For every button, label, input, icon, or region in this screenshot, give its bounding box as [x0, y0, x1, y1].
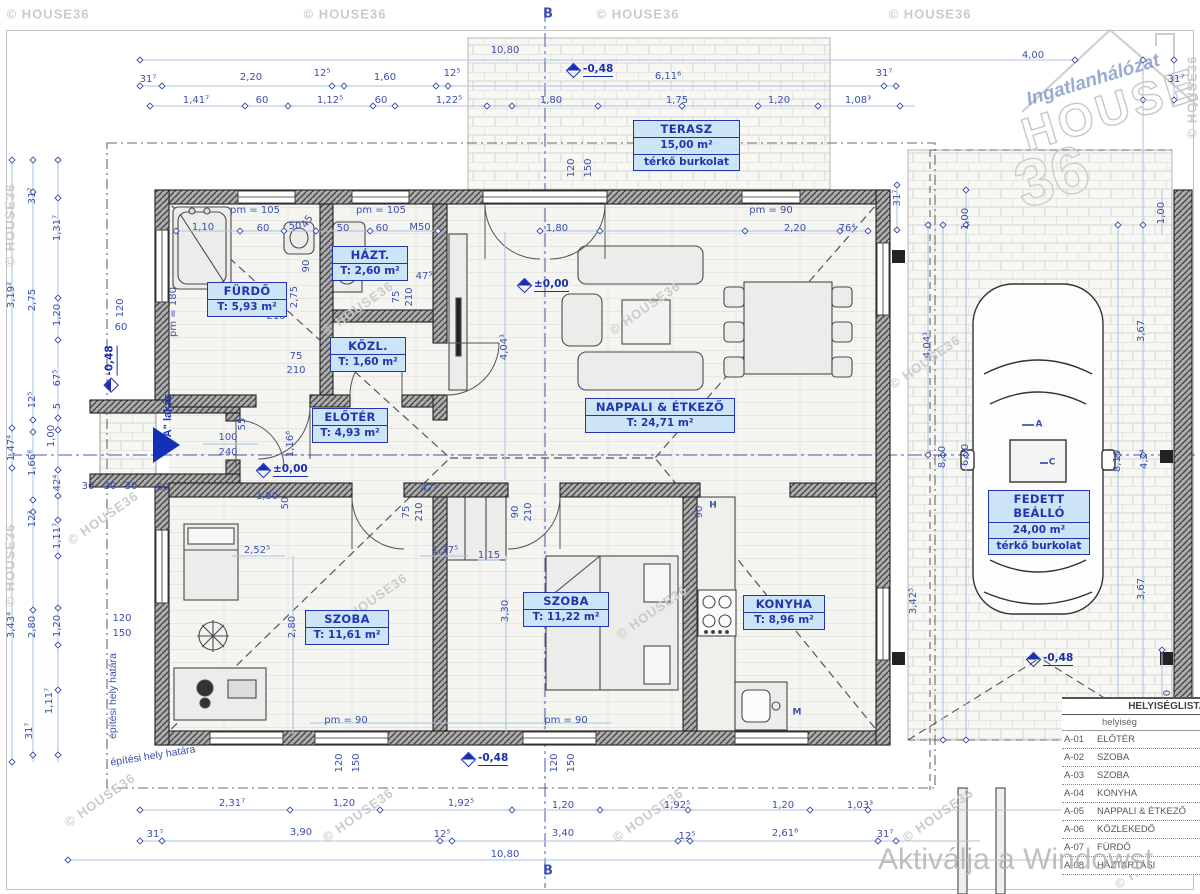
kitchen-sink — [735, 682, 787, 730]
level-marker: -0,48 — [1028, 652, 1073, 666]
dimension-label: 210 — [415, 502, 425, 521]
dimension-label: 12⁵ — [434, 830, 451, 840]
copyright-watermark: © HOUSE36 — [1185, 56, 1200, 139]
dimension-label: 150 — [567, 753, 577, 772]
dimension-label: 31⁷ — [28, 188, 38, 205]
room-label-line: NAPPALI & ÉTKEZŐ — [586, 399, 734, 415]
dimension-label: 1,41⁷ — [183, 96, 209, 106]
dimension-label: 1,22⁵ — [436, 96, 462, 106]
dimension-label: 1,92⁵ — [664, 801, 690, 811]
room-label-kozlekedo: KÖZL.T: 1,60 m² — [330, 337, 406, 372]
room-label-line: T: 4,93 m² — [313, 425, 387, 441]
dimension-label: 50 — [337, 224, 350, 234]
dimension-label: 1,60 — [374, 73, 396, 83]
dimension-label: 30 — [125, 482, 138, 492]
dimension-label: 1,20 — [772, 801, 794, 811]
dimension-label: 12⁵ — [28, 392, 38, 409]
dimension-label: pm = 105 — [356, 206, 406, 216]
dimension-label: 240 — [218, 448, 237, 458]
room-label-line: HÁZT. — [333, 247, 407, 263]
level-value: -0,48 — [583, 63, 613, 77]
dimension-label: 1,20 — [53, 304, 63, 326]
dimension-label: 60 — [375, 96, 388, 106]
room-code: A-06 — [1064, 824, 1088, 835]
dimension-label: 2,31⁷ — [219, 799, 245, 809]
dimension-label: 1,80 — [546, 224, 568, 234]
room-label-line: KÖZL. — [331, 338, 405, 354]
dimension-label: 31⁷ — [893, 190, 903, 207]
dimension-label: 75 — [290, 352, 303, 362]
dimension-label: 31⁷ — [1168, 75, 1185, 85]
level-flag-icon — [103, 377, 119, 393]
room-label-line: ELŐTÉR — [313, 409, 387, 425]
room-label-line: T: 2,60 m² — [333, 263, 407, 279]
dimension-label: 12⁵ — [444, 69, 461, 79]
dimension-label: 12⁵ — [679, 832, 696, 842]
level-value: -0,48 — [1043, 652, 1073, 666]
desk — [174, 668, 266, 720]
bathtub — [173, 207, 231, 289]
room-label-line: KONYHA — [744, 596, 824, 612]
room-code: A-05 — [1064, 806, 1088, 817]
dimension-label: 3,90 — [290, 828, 312, 838]
room-code: A-01 — [1064, 734, 1088, 745]
level-marker: ±0,00 — [519, 278, 569, 292]
dimension-label: 1,31⁷ — [53, 215, 63, 241]
room-name: ELŐTÉR — [1097, 734, 1135, 745]
dimension-label: 60 — [257, 224, 270, 234]
room-label-konyha: KONYHAT: 8,96 m² — [743, 595, 825, 630]
room-label-haztartasi: HÁZT.T: 2,60 m² — [332, 246, 408, 281]
dimension-label: 10,80 — [491, 46, 520, 56]
room-list-row: A-05NAPPALI & ÉTKEZŐ — [1062, 803, 1200, 821]
dimension-label: 67⁵ — [53, 370, 63, 387]
level-flag-icon — [256, 462, 272, 478]
dimension-label: 55 — [238, 418, 248, 431]
dimension-label: 31⁷ — [25, 723, 35, 740]
room-code: A-02 — [1064, 752, 1088, 763]
dimension-label: 2,80 — [28, 616, 38, 638]
room-label-line: térkő burkolat — [634, 154, 739, 170]
level-flag-icon — [461, 751, 477, 767]
dimension-label: 60 — [256, 96, 269, 106]
level-flag-icon — [517, 277, 533, 293]
floorplan-drawing — [0, 0, 1200, 894]
dimension-label: M50 — [409, 223, 430, 233]
site-boundary-label: építési hely határa — [107, 641, 119, 751]
room-name: NAPPALI & ÉTKEZŐ — [1097, 806, 1186, 817]
dimension-label: 2,52⁵ — [244, 546, 270, 556]
room-label-line: T: 5,93 m² — [208, 299, 286, 315]
dimension-label: 4,00 — [1022, 51, 1044, 61]
dimension-label: 1,20 — [333, 799, 355, 809]
dimension-label: 4,04¹ — [923, 332, 933, 358]
level-value: -0,48 — [104, 345, 118, 375]
dimension-label: 1,20 — [53, 615, 63, 637]
room-label-line: SZOBA — [524, 593, 608, 609]
dimension-label: 6,00 — [961, 444, 971, 466]
dimension-label: 3,43⁴ — [7, 612, 17, 638]
dimension-label: 1,12⁵ — [317, 96, 343, 106]
dimension-label: 1,80 — [256, 492, 278, 502]
dimension-label: pm = 90 — [324, 716, 368, 726]
room-list-row: A-01ELŐTÉR — [1062, 731, 1200, 749]
dimension-label: 1,20 — [768, 96, 790, 106]
dimension-label: M — [793, 709, 802, 718]
tv-cabinet — [449, 234, 467, 390]
dimension-label: 2,20 — [784, 224, 806, 234]
room-label-terasz: TERASZ15,00 m²térkő burkolat — [633, 120, 740, 171]
car-top-view — [961, 284, 1115, 614]
room-label-line: T: 1,60 m² — [331, 354, 405, 370]
dimension-label: 4,2⁴ — [1140, 449, 1150, 469]
room-label-szoba-2: SZOBAT: 11,22 m² — [523, 592, 609, 627]
room-label-nappali: NAPPALI & ÉTKEZŐT: 24,71 m² — [585, 398, 735, 433]
dimension-label: 100 — [218, 433, 237, 443]
dimension-label: C — [1049, 459, 1056, 468]
dimension-label: 1,66⁸ — [28, 450, 38, 476]
room-label-eloter: ELŐTÉRT: 4,93 m² — [312, 408, 388, 443]
floorplan-canvas: "A" lakás építési hely határa építési he… — [0, 0, 1200, 894]
dimension-label: A — [1036, 421, 1043, 430]
dimension-label: 90 — [695, 506, 705, 519]
dimension-label: 8,10 — [938, 446, 948, 468]
room-label-line: térkő burkolat — [989, 538, 1089, 554]
dimension-label: 1,00 — [961, 208, 971, 230]
dimension-label: 90 — [511, 506, 521, 519]
dimension-label: 210 — [286, 366, 305, 376]
dimension-label: pm = 180 — [169, 287, 179, 337]
dimension-label: 5 — [53, 403, 63, 409]
room-label-furdo: FÜRDŐT: 5,93 m² — [207, 282, 287, 317]
room-label-line: TERASZ — [634, 121, 739, 137]
dimension-label: 47⁵ — [421, 484, 438, 494]
dimension-label: 75 — [392, 291, 402, 304]
copyright-watermark: © HOUSE36 — [7, 7, 90, 22]
dimension-label: 1,00 — [47, 425, 57, 447]
dimension-label: 3,42⁵ — [909, 588, 919, 614]
copyright-watermark: © HOUSE36 — [3, 524, 18, 607]
dimension-label: 1,92⁵ — [448, 799, 474, 809]
dimension-label: 8,10 — [1113, 450, 1123, 472]
dimension-label: 2,20 — [240, 73, 262, 83]
level-value: ±0,00 — [534, 278, 569, 292]
dimension-label: 150 — [584, 158, 594, 177]
dimension-label: 12⁵ — [314, 69, 331, 79]
dimension-label: B — [543, 865, 553, 878]
room-list-row: A-06KÖZLEKEDŐ — [1062, 821, 1200, 839]
porch-paving — [100, 413, 156, 474]
entrance-unit-label: "A" lakás — [162, 383, 174, 453]
dimension-label: 1,00 — [1157, 202, 1167, 224]
dimension-label: 12³ — [28, 511, 38, 528]
copyright-watermark: © HOUSE36 — [304, 7, 387, 22]
dimension-label: B — [543, 8, 553, 21]
dimension-label: 210 — [405, 287, 415, 306]
dimension-label: pm = 105 — [230, 206, 280, 216]
dimension-label: 30 — [82, 482, 95, 492]
room-name: KONYHA — [1097, 788, 1137, 799]
dimension-label: 31⁷ — [877, 830, 894, 840]
room-code: A-04 — [1064, 788, 1088, 799]
dimension-label: 90 — [302, 260, 312, 273]
dimension-label: 6,11⁶ — [655, 72, 681, 82]
dimension-label: 3,67 — [1137, 578, 1147, 600]
dimension-label: 50 — [281, 497, 291, 510]
room-name: SZOBA — [1097, 770, 1129, 781]
room-name: SZOBA — [1097, 752, 1129, 763]
dimension-label: 1,08³ — [845, 96, 871, 106]
dimension-label: 120 — [335, 753, 345, 772]
room-list-row: A-04KONYHA — [1062, 785, 1200, 803]
dimension-label: 47⁵ — [416, 272, 433, 282]
dimension-label: 31⁷ — [147, 830, 164, 840]
room-list-row: A-02SZOBA — [1062, 749, 1200, 767]
dimension-label: 210 — [524, 502, 534, 521]
dimension-label: 42⁴ — [53, 475, 63, 492]
dimension-label: 1,11⁷ — [53, 523, 63, 549]
room-label-line: SZOBA — [306, 611, 388, 627]
dimension-label: 1,75 — [666, 96, 688, 106]
dimension-label: 3,30 — [501, 600, 511, 622]
dimension-label: 1,20 — [552, 801, 574, 811]
dimension-label: 31⁷ — [140, 75, 157, 85]
dimension-label: 2,80 — [288, 616, 298, 638]
dimension-label: 2,61⁶ — [772, 829, 798, 839]
dimension-label: 60 — [376, 224, 389, 234]
dimension-label: 150 — [352, 753, 362, 772]
kitchen-counter — [697, 497, 736, 732]
dimension-label: 2,75 — [28, 289, 38, 311]
room-code: A-03 — [1064, 770, 1088, 781]
room-list-title: HELYISÉGLISTA — [1062, 699, 1200, 715]
single-bed — [184, 524, 238, 600]
dimension-label: 4,04¹ — [500, 334, 510, 360]
room-list-row: A-03SZOBA — [1062, 767, 1200, 785]
level-flag-icon — [1026, 651, 1042, 667]
level-value: ±0,00 — [273, 463, 308, 477]
activate-windows-watermark: Aktiválja a Windowst — [878, 843, 1153, 877]
level-marker: ±0,00 — [258, 463, 308, 477]
level-marker: -0,48 — [463, 752, 508, 766]
room-name: KÖZLEKEDŐ — [1097, 824, 1155, 835]
level-marker: -0,48 — [568, 63, 613, 77]
dimension-label: 1,47⁴ — [7, 435, 17, 461]
room-label-line: FÜRDŐ — [208, 283, 286, 299]
room-label-line: T: 11,61 m² — [306, 627, 388, 643]
room-label-line: T: 11,22 m² — [524, 609, 608, 625]
dimension-label: 30 — [104, 482, 117, 492]
dimension-label: H — [709, 502, 717, 511]
dimension-label: 3,40 — [552, 829, 574, 839]
dimension-label: 120 — [116, 298, 126, 317]
dimension-label: pm = 90 — [749, 206, 793, 216]
dimension-label: pm = 90 — [544, 716, 588, 726]
copyright-watermark: © HOUSE36 — [3, 184, 18, 267]
room-label-line: 15,00 m² — [634, 137, 739, 153]
dimension-label: 76⁴ — [839, 224, 856, 234]
dimension-label: 1,10 — [192, 223, 214, 233]
dimension-label: 1,80 — [540, 96, 562, 106]
dimension-label: 1,16⁶ — [286, 431, 296, 457]
room-label-fedett-beallo: FEDETT BEÁLLÓ24,00 m²térkő burkolat — [988, 490, 1090, 555]
copyright-watermark: © HOUSE36 — [889, 7, 972, 22]
dimension-label: 1,11⁷ — [45, 688, 55, 714]
dimension-label: 1,03³ — [847, 801, 873, 811]
copyright-watermark: © HOUSE36 — [597, 7, 680, 22]
dimension-label: 10,80 — [491, 850, 520, 860]
room-list-column-header: helyiség — [1062, 715, 1200, 731]
level-marker: -0,48 — [104, 345, 118, 390]
room-label-szoba-1: SZOBAT: 11,61 m² — [305, 610, 389, 645]
dimension-label: 60 — [157, 483, 170, 493]
dimension-label: 120 — [112, 614, 131, 624]
room-label-line: 24,00 m² — [989, 522, 1089, 538]
dimension-label: 60 — [115, 323, 128, 333]
dimension-label: 120 — [567, 158, 577, 177]
dining-table-and-chairs — [724, 282, 852, 377]
dimension-label: 75 — [402, 506, 412, 519]
dimension-label: 2,75 — [290, 286, 300, 308]
dimension-label: 1,15 — [478, 551, 500, 561]
level-value: -0,48 — [478, 752, 508, 766]
dimension-label: 31⁷ — [876, 69, 893, 79]
level-flag-icon — [566, 62, 582, 78]
dimension-label: 150 — [112, 629, 131, 639]
dimension-label: 1,37⁵ — [432, 546, 458, 556]
dimension-label: 120 — [550, 753, 560, 772]
room-label-line: FEDETT BEÁLLÓ — [989, 491, 1089, 522]
room-label-line: T: 24,71 m² — [586, 415, 734, 431]
room-label-line: T: 8,96 m² — [744, 612, 824, 628]
dimension-label: 3,19² — [7, 282, 17, 308]
dimension-label: 3,67 — [1137, 320, 1147, 342]
